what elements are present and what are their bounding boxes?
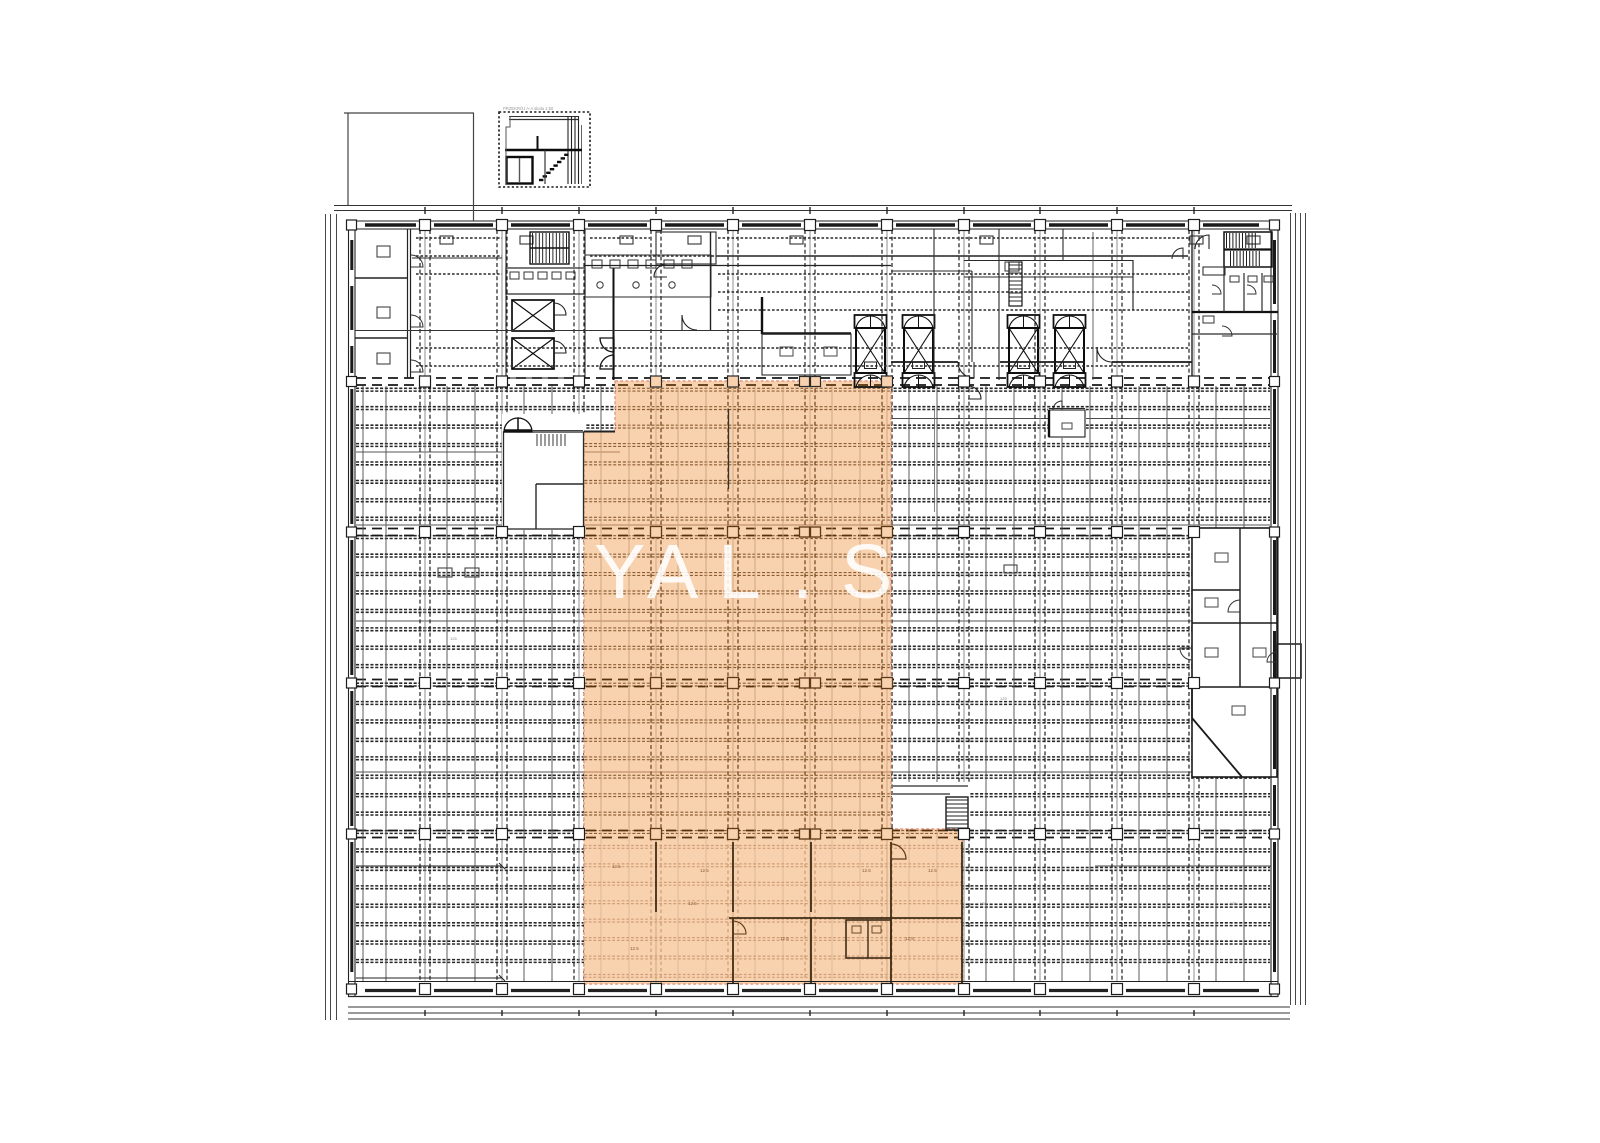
- svg-text:12.5: 12.5: [700, 868, 709, 873]
- svg-text:A: A: [647, 529, 699, 615]
- svg-text:PRZEKRÓJ A-A skala 1:50: PRZEKRÓJ A-A skala 1:50: [503, 106, 554, 111]
- svg-text:12.5: 12.5: [780, 936, 789, 941]
- svg-text:S: S: [841, 529, 892, 615]
- svg-text:12.5: 12.5: [612, 864, 621, 869]
- svg-text:125: 125: [450, 636, 457, 641]
- svg-text:.: .: [792, 529, 813, 615]
- svg-text:L: L: [718, 529, 761, 615]
- svg-text:12.5: 12.5: [928, 868, 937, 873]
- svg-text:12.5: 12.5: [905, 936, 914, 941]
- svg-text:125: 125: [1130, 556, 1137, 561]
- svg-text:12.5: 12.5: [862, 868, 871, 873]
- svg-text:125: 125: [470, 756, 477, 761]
- svg-text:125: 125: [980, 901, 987, 906]
- svg-text:Y: Y: [594, 529, 645, 615]
- svg-text:125: 125: [1150, 756, 1157, 761]
- svg-text:125: 125: [1000, 696, 1007, 701]
- svg-text:12.5: 12.5: [630, 946, 639, 951]
- svg-text:12.5: 12.5: [688, 901, 697, 906]
- svg-text:125: 125: [1230, 901, 1237, 906]
- svg-text:125: 125: [430, 901, 437, 906]
